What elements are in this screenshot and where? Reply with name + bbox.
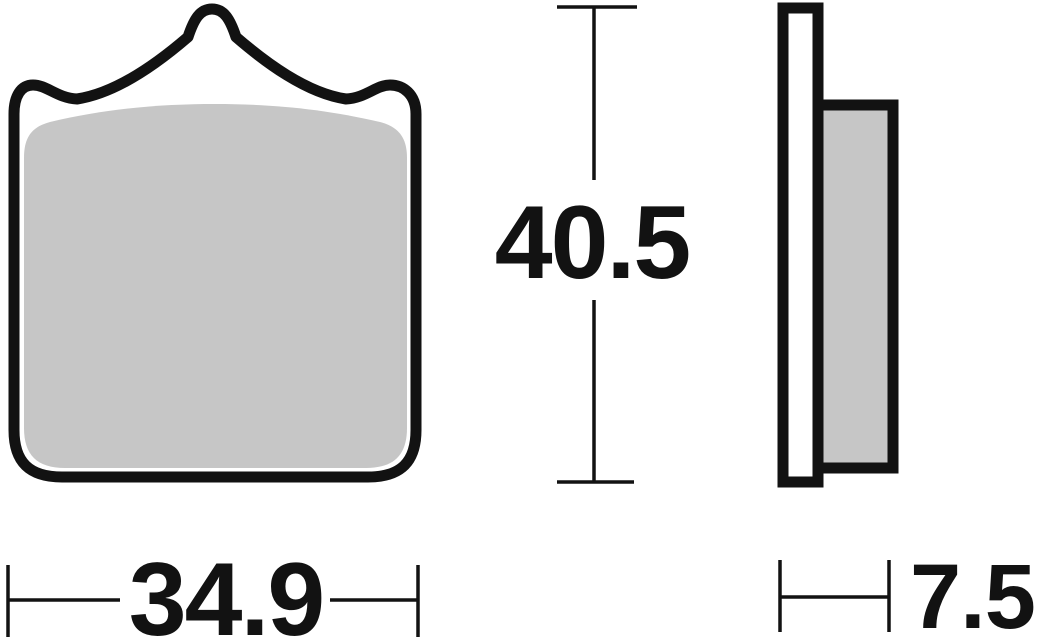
side-view-backplate	[783, 8, 818, 482]
dimension-thickness-value: 7.5	[910, 546, 1035, 641]
brake-pad-dimension-diagram: 40.5 34.9 7.5	[0, 0, 1050, 641]
dimension-height-value: 40.5	[495, 185, 689, 301]
side-view-friction-pad	[817, 105, 893, 468]
dimension-width-value: 34.9	[129, 542, 323, 641]
dimension-thickness	[780, 560, 889, 632]
technical-drawing-canvas: 40.5 34.9 7.5	[0, 0, 1050, 641]
front-view-friction-pad	[24, 104, 407, 468]
brake-pad-front-view	[14, 9, 416, 477]
brake-pad-side-view	[783, 8, 893, 482]
